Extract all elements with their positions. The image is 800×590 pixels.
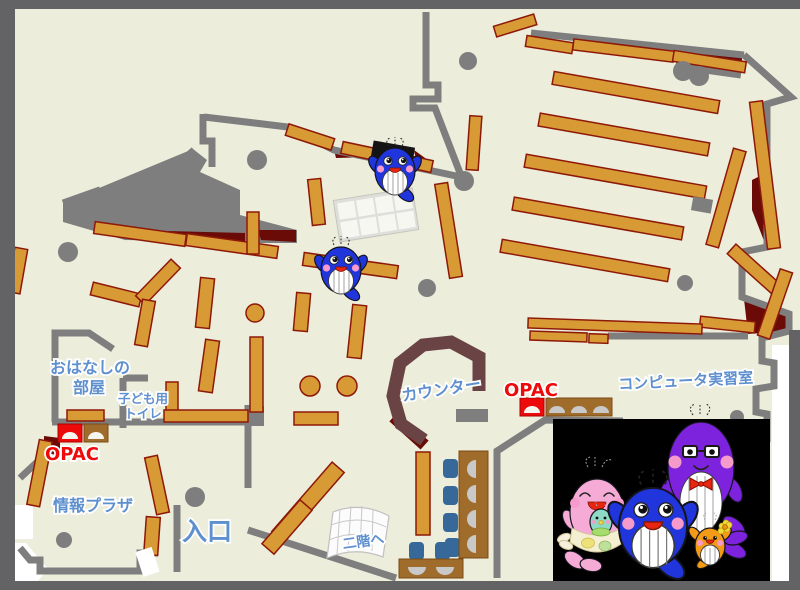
- gray-desk-block: [456, 409, 488, 422]
- table-seat: [337, 201, 356, 220]
- shelf: [530, 331, 587, 342]
- pillar: [459, 52, 477, 70]
- chair: [443, 513, 458, 532]
- shelf: [294, 412, 338, 425]
- pillar: [247, 150, 267, 170]
- shelf: [416, 452, 430, 535]
- shelf: [293, 292, 310, 331]
- pillar: [56, 532, 72, 548]
- table-seat: [375, 195, 394, 214]
- shelf: [589, 334, 608, 344]
- label-kids-toilet: 子ども用: [118, 391, 168, 406]
- table-seat: [396, 211, 415, 230]
- table-seat: [378, 214, 397, 233]
- round-table: [246, 304, 264, 322]
- label-kids-toilet-2: トイレ: [124, 406, 162, 421]
- round-table: [300, 376, 320, 396]
- library-floor-map: おはなしの 部屋 子ども用 トイレ OPAC 情報プラザ 入口 カウンター OP…: [0, 0, 800, 590]
- chair: [435, 542, 450, 560]
- chair: [443, 486, 458, 505]
- table-seat: [340, 220, 359, 239]
- frame-top: [0, 0, 800, 9]
- chair: [443, 459, 458, 478]
- pillar: [58, 242, 78, 262]
- shelf: [250, 337, 263, 412]
- shelf: [247, 212, 259, 254]
- label-storytime-room-2: 部屋: [73, 378, 105, 397]
- frame-left: [0, 0, 15, 590]
- frame-bottom: [0, 581, 800, 590]
- pillar: [677, 275, 693, 291]
- shelf: [67, 410, 104, 421]
- label-storytime-room: おはなしの: [50, 358, 130, 377]
- table-seat: [356, 198, 375, 217]
- pillar: [689, 66, 709, 86]
- frame-right: [789, 330, 800, 581]
- pillar: [185, 487, 205, 507]
- library-floor-map-page: おはなしの 部屋 子ども用 トイレ OPAC 情報プラザ 入口 カウンター OP…: [0, 0, 800, 590]
- pillar: [418, 279, 436, 297]
- label-opac-left: OPAC: [45, 444, 99, 465]
- pillar: [454, 171, 474, 191]
- round-table: [337, 376, 357, 396]
- door-gap-left: [15, 505, 33, 539]
- label-entrance: 入口: [182, 517, 232, 546]
- shelf: [164, 410, 248, 422]
- label-opac-right: OPAC: [504, 380, 558, 401]
- table-seat: [359, 217, 378, 236]
- chair: [409, 542, 424, 560]
- label-info-plaza: 情報プラザ: [53, 496, 133, 515]
